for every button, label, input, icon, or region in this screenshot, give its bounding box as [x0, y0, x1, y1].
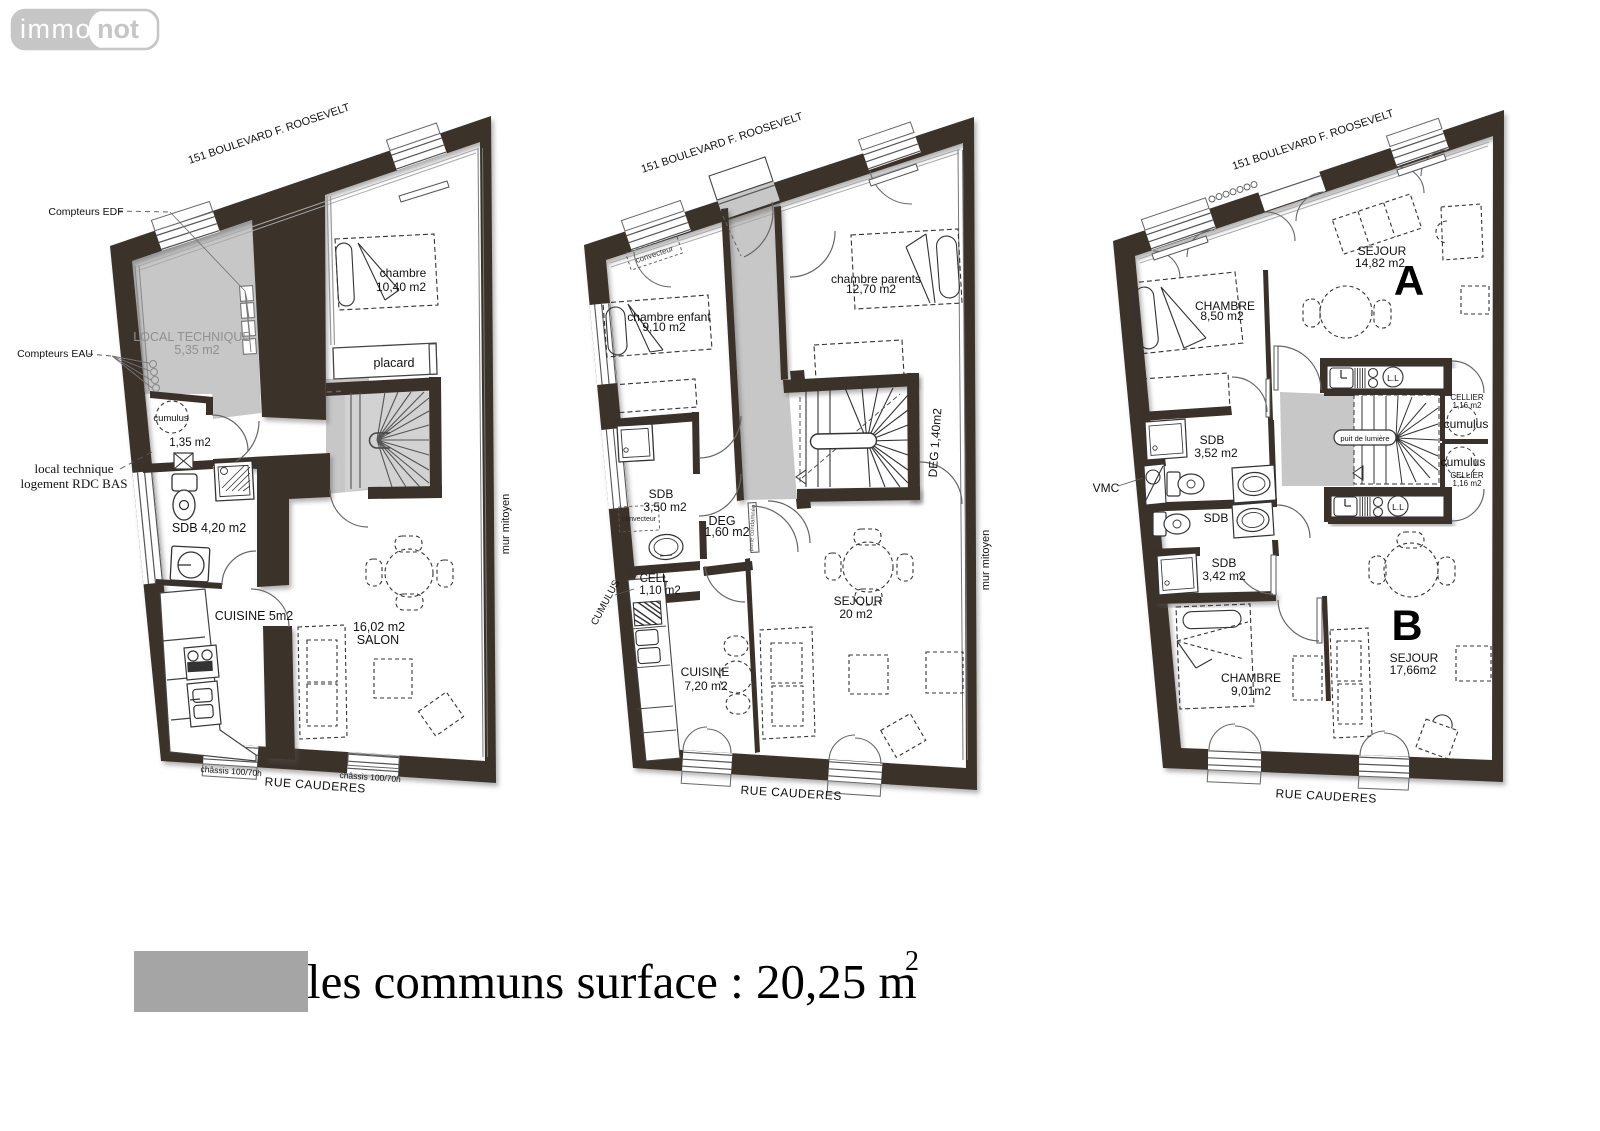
svg-text:cumulus: cumulus [1444, 417, 1489, 431]
svg-text:VMC: VMC [1093, 481, 1120, 495]
svg-text:SEJOUR: SEJOUR [834, 594, 883, 608]
svg-text:cumulus: cumulus [153, 413, 189, 424]
svg-text:local technique: local technique [34, 461, 113, 476]
svg-text:3,50 m2: 3,50 m2 [643, 500, 687, 514]
svg-text:SDB: SDB [1204, 511, 1229, 525]
svg-text:placard: placard [374, 356, 415, 370]
svg-text:L.L: L.L [1387, 373, 1399, 383]
svg-text:not: not [97, 14, 139, 44]
svg-text:9,01m2: 9,01m2 [1231, 684, 1271, 698]
svg-text:1,10 m2: 1,10 m2 [639, 585, 681, 597]
svg-text:17,66m2: 17,66m2 [1390, 663, 1437, 677]
svg-text:mur mitoyen: mur mitoyen [980, 530, 992, 591]
svg-text:1,16 m2: 1,16 m2 [1453, 479, 1482, 488]
svg-text:immo: immo [20, 14, 92, 44]
svg-text:chambre: chambre [380, 266, 427, 280]
svg-text:12,70 m2: 12,70 m2 [846, 282, 896, 296]
svg-text:10,40 m2: 10,40 m2 [376, 280, 426, 294]
svg-text:SDB: SDB [1200, 433, 1225, 447]
svg-text:7,20 m2: 7,20 m2 [684, 679, 728, 693]
svg-text:mur mitoyen: mur mitoyen [500, 494, 512, 555]
svg-text:8,50 m2: 8,50 m2 [1200, 309, 1244, 323]
svg-text:5,35 m2: 5,35 m2 [174, 343, 219, 357]
svg-text:L.L: L.L [1392, 502, 1404, 512]
svg-text:SALON: SALON [357, 633, 399, 647]
svg-text:1,60 m2: 1,60 m2 [704, 525, 749, 539]
svg-text:convecteur: convecteur [622, 516, 657, 523]
svg-text:Compteurs EAU: Compteurs EAU [17, 348, 93, 360]
svg-text:A: A [1394, 257, 1424, 304]
svg-text:9,10 m2: 9,10 m2 [642, 320, 686, 334]
svg-text:LOCAL TECHNIQUE: LOCAL TECHNIQUE [133, 330, 250, 344]
svg-text:3,52 m2: 3,52 m2 [1194, 446, 1238, 460]
svg-text:puit de lumière: puit de lumière [1340, 434, 1389, 443]
svg-text:Compteurs EDF: Compteurs EDF [48, 206, 123, 218]
svg-text:2: 2 [905, 946, 919, 977]
svg-text:CUISINE 5m2: CUISINE 5m2 [215, 609, 294, 623]
svg-text:SDB: SDB [649, 487, 674, 501]
svg-text:SDB: SDB [1212, 556, 1237, 570]
svg-text:B: B [1391, 602, 1422, 650]
svg-text:CUISINE: CUISINE [681, 665, 730, 679]
svg-text:16,02 m2: 16,02 m2 [353, 620, 405, 634]
svg-text:20 m2: 20 m2 [839, 607, 873, 621]
svg-text:cumulus: cumulus [1441, 455, 1486, 469]
svg-text:1,35 m2: 1,35 m2 [169, 437, 211, 449]
svg-text:SDB 4,20 m2: SDB 4,20 m2 [172, 521, 246, 535]
svg-text:les communs surface : 20,25 m: les communs surface : 20,25 m [307, 954, 917, 1009]
svg-text:1,16 m2: 1,16 m2 [1453, 401, 1482, 410]
svg-text:3,42 m2: 3,42 m2 [1202, 569, 1246, 583]
svg-text:CHAMBRE: CHAMBRE [1221, 671, 1281, 685]
svg-text:CELL: CELL [640, 573, 669, 585]
svg-text:logement RDC BAS: logement RDC BAS [21, 476, 128, 491]
